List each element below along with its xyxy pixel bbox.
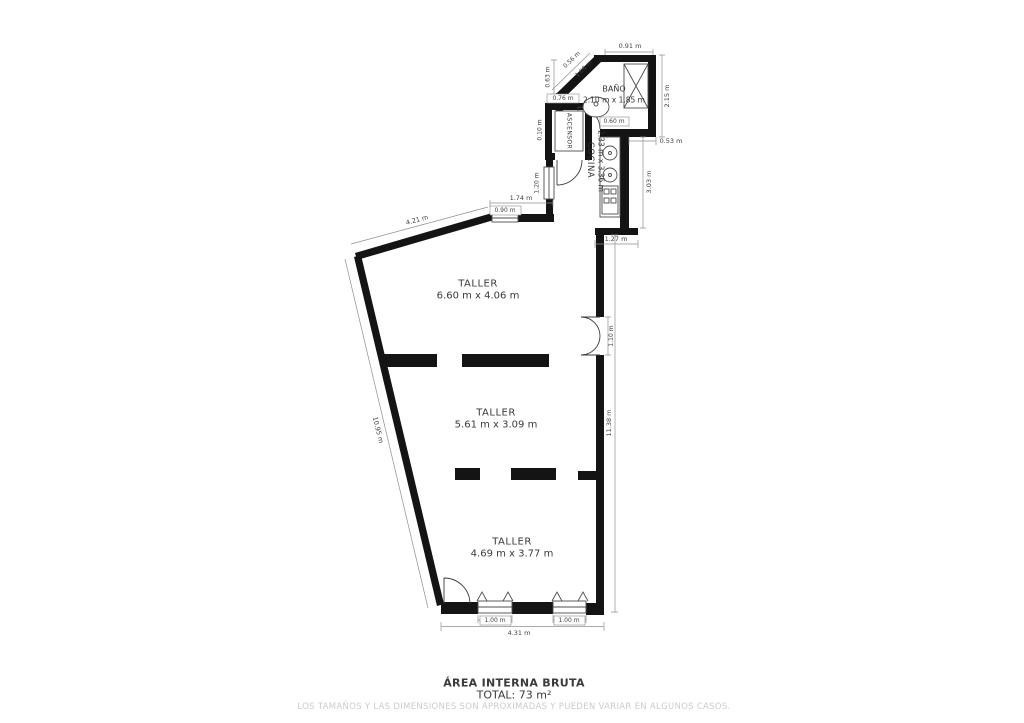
wall-bano-top [594,55,653,62]
dim-cocina-right: 3.03 m [645,171,653,194]
room-label-cocina: COCINA [585,142,595,178]
wall-bottom-right [586,603,604,615]
floorplan: 0.91 m 0.56 m 1.09 m 0.63 m 2.15 m 0.60 … [0,0,1024,723]
wall-divider2-right [511,468,556,480]
dim-bano-right: 2.15 m [663,85,671,108]
dim-top-wall: 4.21 m [405,213,429,227]
wall-cocina-right [620,135,629,235]
wall-divider1-right [462,354,549,367]
dimline-left-wall [345,259,428,608]
footer: ÁREA INTERNA BRUTA TOTAL: 73 m² LOS TAMA… [297,677,730,713]
wall-left-slanted [354,255,444,606]
wall-divider2-left [455,468,480,480]
room-label-ascensor: ASCENSOR [566,113,573,149]
wall-ascensor-left [545,103,552,160]
dim-bano-top: 0.91 m [619,42,642,50]
dim-window-left: 1.00 m [484,617,505,624]
wall-right-upper [596,232,604,317]
footer-disclaimer: LOS TAMAÑOS Y LAS DIMENSIONES SON APROXI… [297,701,730,712]
dim-bottom-width: 4.31 m [508,629,531,637]
floorplan-page: 0.91 m 0.56 m 1.09 m 0.63 m 2.15 m 0.60 … [0,0,1024,723]
room-label-bano: BAÑO [602,84,625,94]
door-entry-icon [444,578,470,604]
dim-right-wall: 11.38 m [605,409,613,436]
dim-double-door: 1.10 m [608,325,615,346]
dim-corridor-window: 1.20 m [534,172,541,193]
dim-bano-offset: 0.53 m [660,137,683,145]
window-opening-markers [477,592,588,601]
dimline-bano-offset [629,137,656,145]
room-size-taller-top: 6.60 m x 4.06 m [437,291,520,302]
wall-divider2-stub [578,471,596,480]
dim-window-right: 1.00 m [558,617,579,624]
dim-ascensor-width: 0.76 m [552,95,573,102]
dim-wall-gap: 0.10 m [537,119,544,140]
room-label-taller-top: TALLER [457,279,498,290]
room-size-taller-bot: 4.69 m x 3.77 m [471,549,554,560]
wall-bottom-middle [512,602,553,614]
room-size-bano: 2.10 m x 1.85 m [583,96,645,105]
room-label-taller-bot: TALLER [491,537,532,548]
room-size-cocina: 2.33 m x 3.36 m [597,130,606,192]
dim-cocina-bottom: 1.27 m [605,235,628,243]
dim-chamfer-outer: 0.56 m [562,50,582,70]
wall-bano-right [648,55,656,137]
dim-bano-left: 0.63 m [545,66,552,87]
footer-total: TOTAL: 73 m² [476,689,552,702]
wall-right-lower [596,355,604,615]
wall-ascensor-stub [545,153,555,160]
dim-top-window: 0.90 m [494,207,515,214]
wall-top-right-segment [517,214,554,222]
wall-divider1-left [382,354,437,367]
dim-bano-door: 0.60 m [603,118,624,125]
wall-bottom-left [441,602,478,614]
room-size-taller-mid: 5.61 m x 3.09 m [455,420,538,431]
room-label-taller-mid: TALLER [475,408,516,419]
double-door-icon [581,317,600,355]
dim-top-span: 1.74 m [510,194,533,202]
dimline-bano-left [551,60,557,94]
door-ascensor-icon [557,160,582,185]
